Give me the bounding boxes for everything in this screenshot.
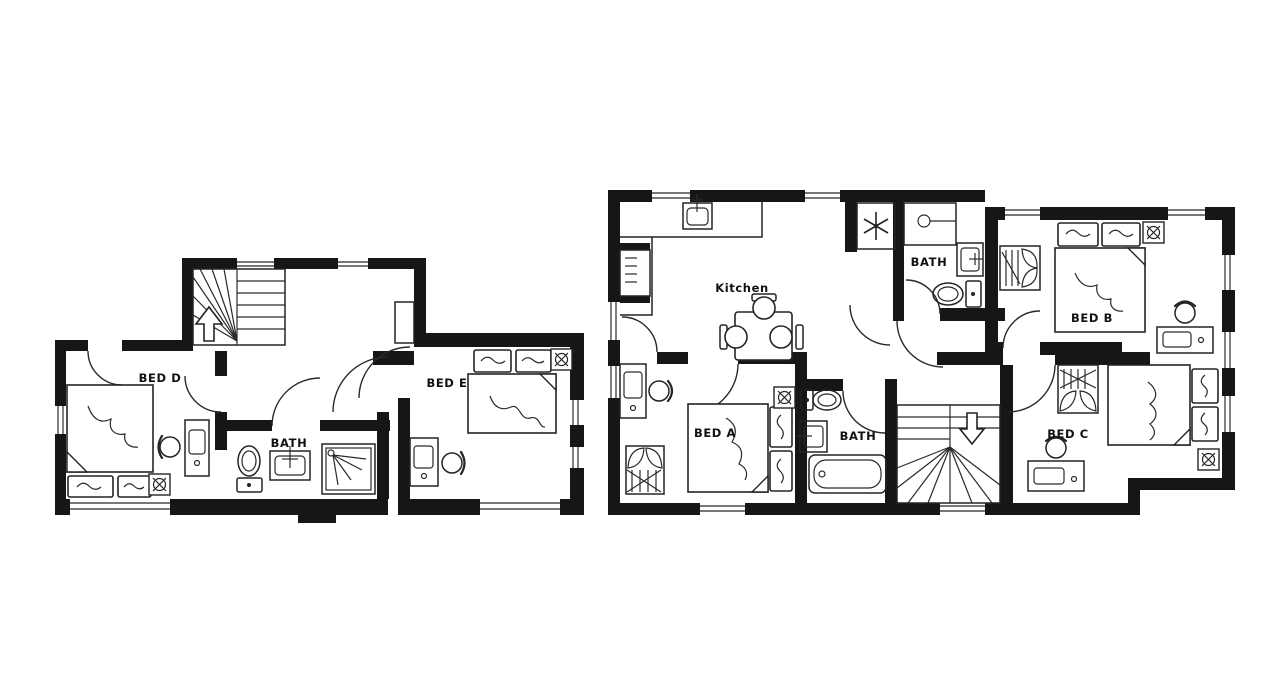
pillow-icon — [770, 451, 792, 491]
door-arc-bath-top — [906, 280, 940, 314]
room-bed-a: BED A — [620, 364, 795, 494]
radiator-icon — [1198, 449, 1219, 470]
door-arc-bed-d-side — [185, 376, 221, 412]
stairs-up-arrow-icon — [196, 307, 222, 341]
bed-icon — [468, 374, 556, 433]
door-arc-bath — [272, 378, 320, 426]
bed-icon — [67, 385, 153, 472]
pillow-icon — [1192, 369, 1218, 403]
door-arc-bed-d-top — [88, 351, 122, 385]
chair-icon — [442, 453, 462, 473]
radiator-icon — [149, 474, 170, 495]
door-arc-hall-2 — [897, 321, 943, 367]
hall-radiator — [395, 302, 414, 343]
room-label-bed-d: BED D — [139, 371, 182, 385]
room-label-bath-left: BATH — [271, 436, 308, 450]
chair-icon — [725, 326, 747, 348]
room-label-kitchen: Kitchen — [715, 281, 769, 295]
bed-icon — [688, 404, 768, 492]
room-bed-b: BED B — [1000, 222, 1213, 353]
chair-icon — [1046, 438, 1066, 458]
door-arc-hall-1 — [850, 305, 890, 345]
bed-icon — [1108, 365, 1190, 445]
pillow-icon — [474, 350, 511, 372]
chair-icon — [770, 326, 792, 348]
chair-icon — [160, 437, 180, 457]
room-label-bed-c: BED C — [1047, 427, 1089, 441]
room-bed-c: BED C — [1028, 365, 1219, 491]
shower-icon — [322, 444, 375, 494]
pillow-icon — [770, 407, 792, 447]
floorplan-image: BED D BATH — [0, 0, 1280, 694]
door-arc-bed-c — [1008, 365, 1055, 412]
door-arc-bed-b — [1003, 311, 1040, 348]
shower-icon — [904, 203, 956, 245]
chair-icon — [649, 381, 669, 401]
stairs-down-arrow-icon — [960, 413, 984, 444]
door-arc-kitchen — [622, 317, 657, 352]
radiator-icon — [551, 349, 572, 370]
desk-icon — [1028, 461, 1084, 491]
room-bath-left: BATH — [237, 436, 375, 494]
room-bath-top: BATH — [904, 203, 983, 307]
pillow-icon — [1058, 223, 1098, 246]
room-label-bed-b: BED B — [1071, 311, 1113, 325]
pillow-icon — [68, 476, 113, 497]
radiator-icon — [1143, 222, 1164, 243]
chair-icon — [1175, 303, 1195, 323]
pillow-icon — [1102, 223, 1140, 246]
staircase-up — [193, 269, 285, 345]
room-bath-bottom: BATH — [796, 390, 886, 493]
floor-plan-left: BED D BATH — [55, 258, 584, 523]
room-label-bed-a: BED A — [694, 426, 736, 440]
room-label-bed-e: BED E — [426, 376, 467, 390]
room-label-bath-bottom: BATH — [840, 429, 877, 443]
room-bed-e: BED E — [410, 349, 572, 486]
oven-icon — [620, 250, 650, 296]
floorplan-canvas: BED D BATH — [0, 0, 1280, 694]
room-label-bath-top: BATH — [911, 255, 948, 269]
chair-icon — [753, 297, 775, 319]
floor-plan-right: Kitchen BATH — [608, 190, 1235, 515]
radiator-icon — [774, 387, 795, 408]
desk-icon — [1157, 327, 1213, 353]
pillow-icon — [1192, 407, 1218, 441]
door-arc-bath-bottom — [843, 391, 885, 433]
snowflake-icon — [864, 212, 888, 240]
staircase-down — [897, 405, 1000, 503]
